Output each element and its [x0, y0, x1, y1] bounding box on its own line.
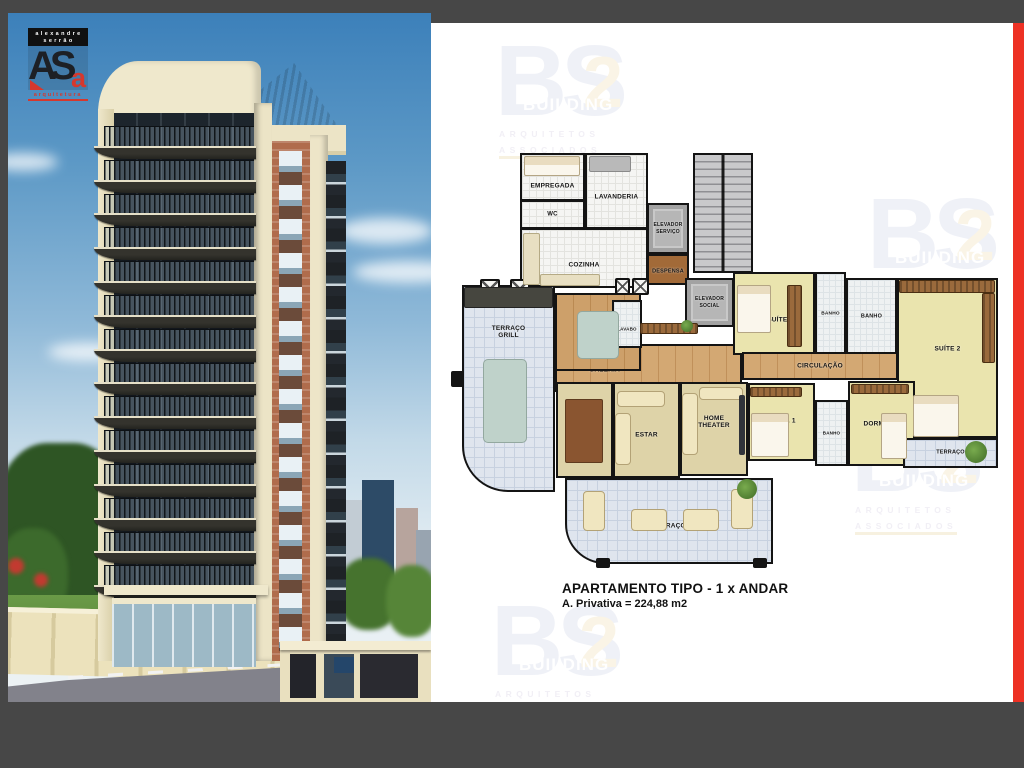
room-label: ELEVADOR SERVIÇO	[653, 222, 682, 236]
balcony-railing	[104, 126, 254, 146]
plan-sofa	[615, 413, 631, 465]
room-label: LAVANDERIA	[595, 193, 639, 200]
monogram-a: a	[71, 65, 86, 92]
balcony-slab	[94, 146, 256, 159]
balcony-floor	[94, 260, 256, 294]
plan-wall-block	[451, 371, 464, 387]
balcony-railing	[104, 194, 254, 214]
lobby-glass	[112, 598, 256, 667]
balcony-slab	[94, 518, 256, 531]
bs2-watermark: BS2BUILDINGARQUITETOSASSOCIADOS	[495, 33, 645, 159]
balcony-slab	[94, 247, 256, 260]
balcony-slab	[94, 551, 256, 564]
gate-doorway	[290, 654, 316, 698]
plan-bed	[881, 413, 907, 459]
balcony-railing	[104, 565, 254, 585]
room-label: COZINHA	[568, 261, 599, 268]
plan-table-glass	[577, 311, 619, 359]
monogram-triangle-icon	[30, 80, 44, 90]
balcony-railing	[104, 363, 254, 383]
plan-sofa	[682, 393, 698, 455]
plan-sofa	[683, 509, 719, 531]
side-balconies	[326, 161, 346, 653]
room-elevador-social: ELEVADOR SOCIAL	[685, 278, 734, 327]
room-label: SUÍTE 2	[935, 345, 961, 352]
room-label: TERRAÇO GRILL	[492, 325, 526, 339]
plan-area-note: A. Privativa = 224,88 m2	[562, 598, 687, 610]
balcony-floor	[94, 193, 256, 227]
gate-driveway	[360, 654, 418, 698]
cloud	[338, 218, 431, 244]
logo-monogram: AS a	[28, 46, 88, 90]
plan-plant	[681, 320, 693, 332]
brick-section-windows	[279, 151, 302, 651]
room-label: WC	[547, 211, 557, 218]
plan-sofa	[583, 491, 605, 531]
lobby-canopy	[104, 585, 268, 595]
plan-sofa	[699, 387, 743, 400]
balcony-floor	[94, 159, 256, 193]
balcony-floor	[94, 497, 256, 531]
room-label: HOME THEATER	[698, 415, 730, 429]
plan-plant	[737, 479, 757, 499]
gate-canopy	[280, 641, 431, 650]
room-escada	[693, 153, 753, 273]
balcony-railing	[104, 396, 254, 416]
balcony-floor	[94, 429, 256, 463]
balcony-floor	[94, 362, 256, 396]
gate-sign	[334, 657, 354, 673]
room-elevador-servico: ELEVADOR SERVIÇO	[647, 203, 689, 254]
room-label: LAVABO	[617, 326, 637, 333]
balcony-floor	[94, 294, 256, 328]
cloud	[8, 153, 58, 171]
balcony-railing	[104, 329, 254, 349]
plan-cabinet	[540, 274, 600, 286]
room-label: BANHO	[821, 310, 840, 317]
balcony-railing	[104, 532, 254, 552]
room-label: DESPENSA	[652, 269, 684, 276]
plan-wall-block	[753, 558, 767, 568]
balcony-slab	[94, 349, 256, 362]
plan-title: APARTAMENTO TIPO - 1 x ANDAR	[562, 581, 788, 596]
plan-table-wood	[565, 399, 603, 463]
plan-plant	[965, 441, 987, 463]
balcony-slab	[94, 484, 256, 497]
red-flowers	[8, 558, 24, 574]
room-banho-dorms: BANHO	[815, 400, 848, 466]
balcony-slab	[94, 180, 256, 193]
room-label: TERRAÇO	[936, 450, 965, 457]
architect-logo: alexandre serrão AS a arquitetura	[28, 28, 88, 101]
balcony-slab	[94, 281, 256, 294]
room-label: BANHO	[861, 313, 882, 320]
plan-closet	[899, 280, 995, 293]
balcony-stack	[94, 125, 256, 598]
entrance-gate	[280, 641, 431, 702]
plan-closet	[982, 293, 995, 363]
tree	[386, 565, 431, 637]
architect-name-line1: alexandre	[31, 31, 87, 38]
balcony-floor	[94, 328, 256, 362]
balcony-floor	[94, 395, 256, 429]
balcony-railing	[104, 498, 254, 518]
plan-bed	[913, 395, 959, 437]
room-label: EMPREGADA	[530, 182, 574, 189]
presentation-board: alexandre serrão AS a arquitetura APARTA…	[0, 0, 1024, 768]
room-circulacao: CIRCULAÇÃO	[742, 352, 898, 380]
plan-bed	[737, 285, 771, 333]
room-despensa: DESPENSA	[647, 254, 689, 285]
room-label: ELEVADOR SOCIAL	[695, 296, 724, 310]
plan-counter-dark	[464, 287, 553, 308]
plan-cabinet	[523, 233, 540, 285]
room-label: CIRCULAÇÃO	[797, 363, 843, 370]
building-rendering-photo: alexandre serrão AS a arquitetura	[8, 13, 431, 702]
plan-column	[615, 278, 630, 295]
balcony-slab	[94, 315, 256, 328]
plan-table-glass	[483, 359, 527, 443]
cloud	[353, 261, 431, 283]
plan-closet	[750, 387, 802, 397]
plan-closet	[787, 285, 802, 347]
room-banho-suite2: BANHO	[846, 278, 897, 355]
balcony-railing	[104, 261, 254, 281]
balcony-floor	[94, 125, 256, 159]
balcony-floor	[94, 463, 256, 497]
balcony-railing	[104, 430, 254, 450]
plan-column	[632, 278, 649, 295]
balcony-slab	[94, 416, 256, 429]
plan-counter	[589, 156, 631, 172]
plan-screen	[739, 395, 745, 455]
room-wc: WC	[520, 200, 585, 229]
plan-sofa	[617, 391, 665, 407]
floor-plan-panel: APARTAMENTO TIPO - 1 x ANDAR A. Privativ…	[431, 23, 1013, 702]
balcony-floor	[94, 531, 256, 565]
room-banho-suite1: BANHO	[815, 272, 846, 355]
red-flowers	[34, 573, 48, 587]
room-label: BANHO	[823, 430, 841, 437]
balcony-slab	[94, 382, 256, 395]
red-accent-stripe	[1013, 23, 1024, 702]
balcony-railing	[104, 295, 254, 315]
balcony-floor	[94, 226, 256, 260]
balcony-railing	[104, 160, 254, 180]
plan-sofa	[631, 509, 667, 531]
room-label: ESTAR	[635, 431, 658, 438]
plan-bed	[751, 413, 789, 457]
balcony-slab	[94, 450, 256, 463]
logo-field-label: arquitetura	[28, 92, 88, 101]
plan-closet	[851, 384, 909, 394]
balcony-railing	[104, 227, 254, 247]
plan-bed	[524, 156, 580, 176]
balcony-railing	[104, 464, 254, 484]
plan-wall-block	[596, 558, 610, 568]
tower-right-column	[254, 103, 272, 661]
balcony-slab	[94, 213, 256, 226]
